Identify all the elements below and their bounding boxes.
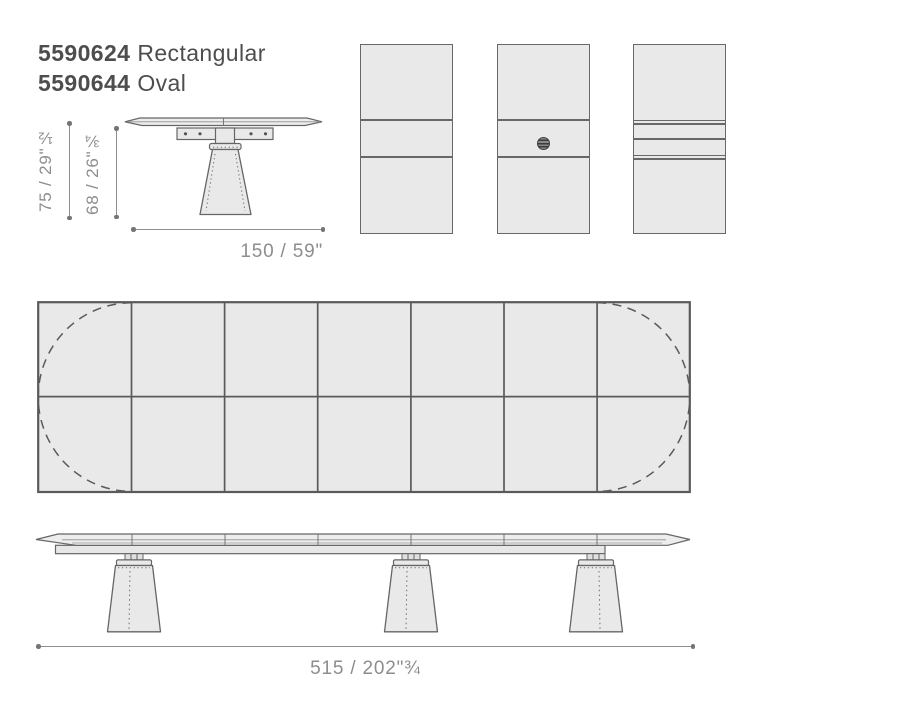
dim-line-side-width	[133, 229, 323, 230]
spec-sheet: 5590624Rectangular 5590644Oval 75 / 29"½…	[0, 0, 904, 720]
elevation-rail	[56, 545, 606, 553]
product-type: Oval	[137, 70, 186, 96]
panel-seam	[361, 119, 453, 121]
top-panel-grommet	[497, 44, 590, 234]
elevation-leg-middle	[385, 554, 438, 632]
title-block: 5590624Rectangular 5590644Oval	[38, 38, 266, 98]
panel-seam	[634, 123, 726, 125]
dim-label-side-width: 150 / 59"	[133, 241, 323, 263]
dim-label-total-height: 75 / 29"½	[34, 121, 58, 218]
top-panel-extensions	[633, 44, 726, 234]
panel-seam	[634, 158, 726, 160]
panel-seam	[498, 119, 590, 121]
plan-view-drawing	[34, 298, 694, 496]
top-panel-plain	[360, 44, 453, 234]
product-type: Rectangular	[137, 40, 265, 66]
dim-line-total-height	[69, 123, 70, 218]
side-view-leg	[200, 150, 251, 215]
side-view-leg-cap	[210, 144, 242, 150]
product-line-rectangular: 5590624Rectangular	[38, 38, 266, 68]
panel-seam	[634, 138, 726, 140]
panel-seam	[634, 120, 726, 122]
cable-grommet	[537, 137, 550, 150]
panel-seam	[634, 155, 726, 157]
product-line-oval: 5590644Oval	[38, 68, 266, 98]
side-view-column	[216, 128, 235, 144]
front-elevation-drawing	[30, 528, 700, 640]
panel-seam	[361, 156, 453, 158]
elevation-leg-left	[108, 554, 161, 632]
panel-seam	[498, 156, 590, 158]
side-view-drawing	[118, 112, 330, 222]
dim-label-total-length: 515 / 202"¾	[38, 658, 693, 680]
dim-label-underside-height: 68 / 26"¾	[81, 126, 105, 219]
product-code: 5590644	[38, 70, 130, 96]
dim-line-total-length	[38, 646, 693, 647]
elevation-leg-right	[570, 554, 623, 632]
dim-line-underside-height	[116, 128, 117, 217]
product-code: 5590624	[38, 40, 130, 66]
